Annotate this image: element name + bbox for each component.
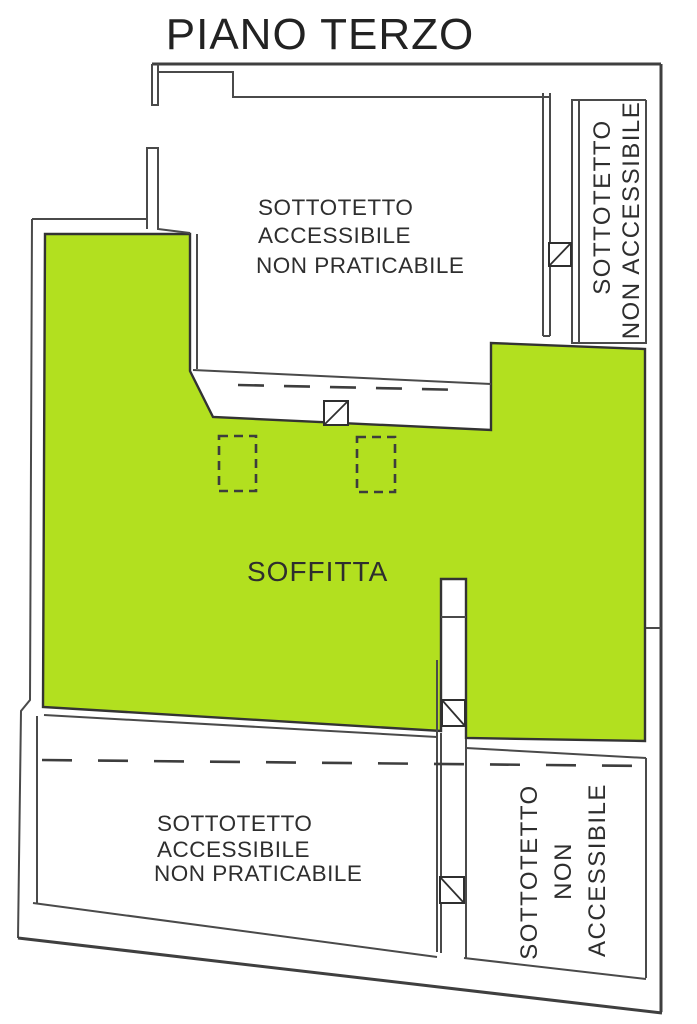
bottom-left-label-line3: NON PRATICABILE xyxy=(154,861,362,886)
floorplan-page: PIANO TERZO xyxy=(0,0,697,1024)
strip-attic-left-wall xyxy=(572,99,579,344)
bottom-right-attic-top-wall xyxy=(466,748,646,758)
soffitta-label: SOFFITTA xyxy=(247,556,388,587)
soffitta-area xyxy=(43,234,645,741)
floor-plan-drawing: PIANO TERZO xyxy=(0,0,697,1024)
projection-dashed-line xyxy=(42,760,646,766)
bottom-left-label-line1: SOTTOTETTO xyxy=(157,811,312,836)
top-attic-bottom-wall xyxy=(193,370,491,384)
bottom-right-label-line1: SOTTOTETTO xyxy=(516,784,543,959)
right-strip-attic-label: SOTTOTETTO NON ACCESSIBILE xyxy=(589,101,645,340)
bottom-right-label-line2: NON xyxy=(550,842,577,900)
page-title: PIANO TERZO xyxy=(166,10,474,59)
bottom-left-label-line2: ACCESSIBILE xyxy=(157,837,310,862)
bottom-right-label-line3: ACCESSIBILE xyxy=(584,783,611,957)
top-attic-label-line2: ACCESSIBILE xyxy=(258,223,411,248)
right-strip-label-line1: SOTTOTETTO xyxy=(589,119,616,294)
bottom-right-attic-label: SOTTOTETTO NON ACCESSIBILE xyxy=(516,783,611,960)
top-attic-label: SOTTOTETTO ACCESSIBILE NON PRATICABILE xyxy=(256,195,464,278)
recess-dashed-line xyxy=(238,385,465,390)
top-wall-inner-line xyxy=(158,72,550,97)
access-hatch-top-right xyxy=(549,243,571,266)
top-attic-label-line3: NON PRATICABILE xyxy=(256,253,464,278)
top-attic-label-line1: SOTTOTETTO xyxy=(258,195,413,220)
outer-bottom-wall xyxy=(18,938,662,1013)
bottom-right-attic-bottom-wall xyxy=(464,958,646,979)
top-attic-left-wall xyxy=(147,148,190,233)
top-wall-stub xyxy=(152,64,158,105)
outer-left-wall xyxy=(18,219,32,938)
right-strip-label-line2: NON ACCESSIBILE xyxy=(618,101,645,340)
access-hatch-recess xyxy=(324,401,348,425)
top-attic-right-wall xyxy=(543,93,550,336)
bottom-left-attic-label: SOTTOTETTO ACCESSIBILE NON PRATICABILE xyxy=(154,811,362,886)
access-hatch-chimney xyxy=(442,700,465,726)
access-hatch-lower-strip xyxy=(440,877,464,903)
bottom-left-attic-bottom-wall xyxy=(33,903,437,957)
